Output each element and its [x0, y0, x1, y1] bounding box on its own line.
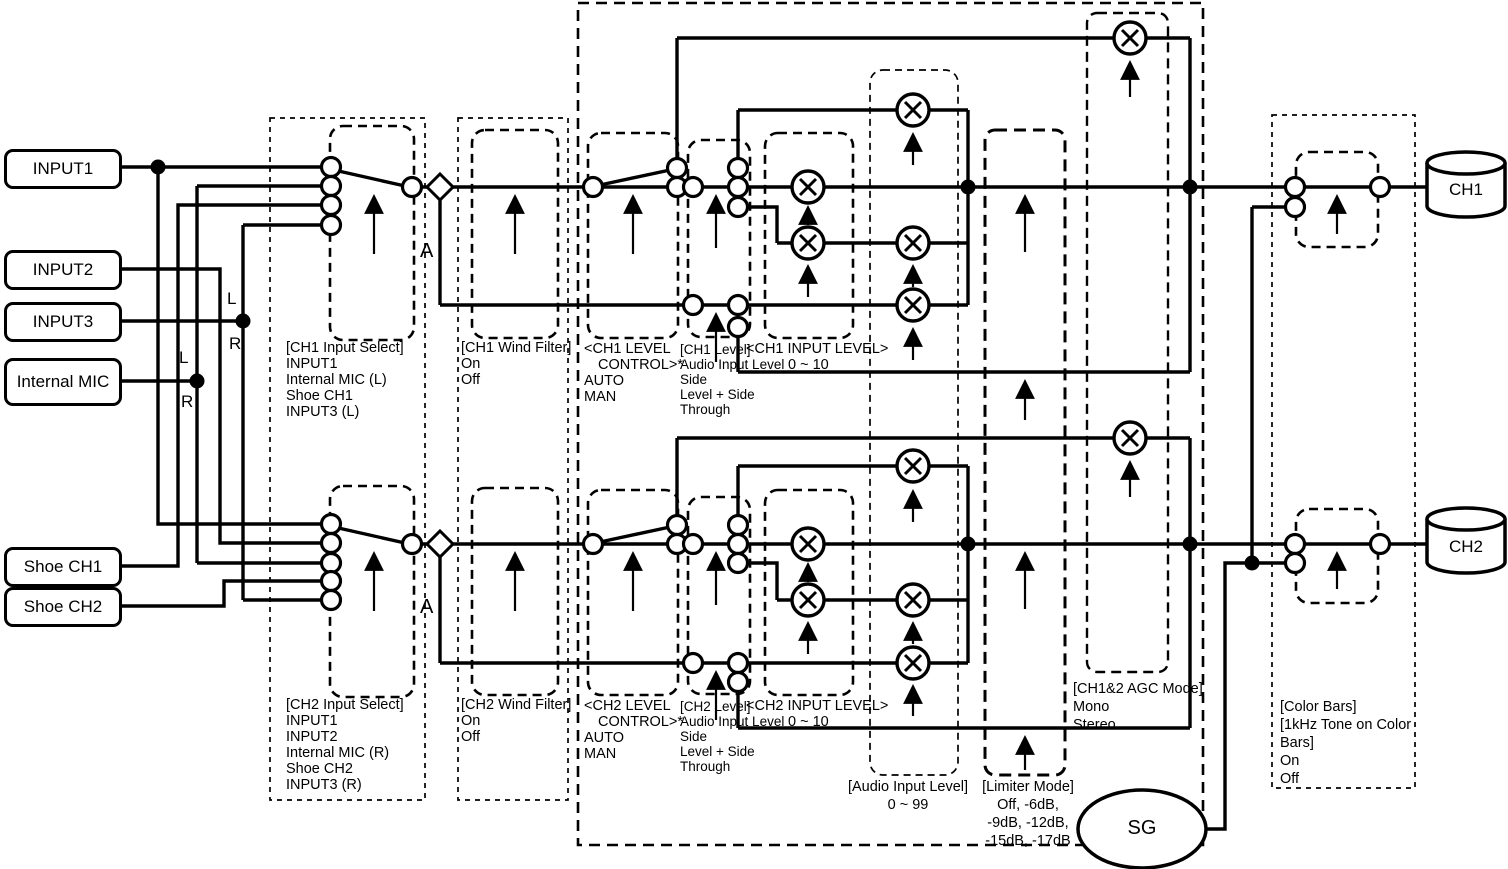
contact-circle [403, 178, 422, 197]
input3-right-marker: R [229, 334, 241, 354]
shoe-ch1-box: Shoe CH1 [4, 547, 122, 587]
wire-shoe-ch2 [120, 581, 331, 606]
contact-circle [322, 196, 341, 215]
contact-circle [729, 159, 748, 178]
menu-option: INPUT3 (L) [286, 404, 404, 420]
menu-option: INPUT1 [286, 713, 404, 729]
multiplier-icon [792, 171, 824, 203]
audio-input-level-title: [Audio Input Level] [848, 778, 968, 796]
contact-circle [729, 318, 748, 337]
input3-label: INPUT3 [33, 312, 93, 332]
ch1-wind-filter-label: [CH1 Wind Filter] On Off [461, 340, 571, 388]
ch2-input-level-range: 0 ~ 10 [746, 714, 888, 730]
contact-circle [1371, 178, 1390, 197]
shoe-ch2-box: Shoe CH2 [4, 587, 122, 627]
contact-circle [403, 535, 422, 554]
agc-mode-label: [CH1&2 AGC Mode] Mono Stereo [1073, 680, 1203, 734]
menu-option: Shoe CH1 [286, 388, 404, 404]
agc-mode-title: [CH1&2 AGC Mode] [1073, 680, 1203, 698]
ch1-tap-a-marker: A [420, 240, 433, 263]
contact-circle [322, 177, 341, 196]
menu-option: AUTO [584, 373, 683, 389]
contact-circle [322, 572, 341, 591]
input3-left-marker: L [227, 289, 236, 309]
ch2-input-level-label: <CH2 INPUT LEVEL> 0 ~ 10 [746, 698, 888, 730]
contact-circle [1286, 535, 1305, 554]
ch2-input-select-block [330, 486, 414, 697]
ch1-input-level-range: 0 ~ 10 [746, 357, 888, 373]
junction-dot [961, 180, 976, 195]
contact-circle [684, 654, 703, 673]
menu-option: On [461, 356, 571, 372]
menu-option: INPUT3 (R) [286, 777, 404, 793]
ch1-level-control-title2: CONTROL>* [584, 357, 683, 373]
ch2-wind-filter-label: [CH2 Wind Filter] On Off [461, 697, 571, 745]
multiplier-icon [792, 528, 824, 560]
contact-circle [729, 178, 748, 197]
menu-option: Level + Side [680, 744, 784, 759]
ch1-level-control-title: <CH1 LEVEL [584, 341, 683, 357]
menu-option: Off [461, 372, 571, 388]
menu-option: Off [1280, 770, 1411, 788]
multiplier-icon [897, 289, 929, 321]
contact-circle [729, 554, 748, 573]
ch2-level-control-label: <CH2 LEVEL CONTROL>* AUTO MAN [584, 698, 683, 762]
contact-circle [322, 554, 341, 573]
contact-circle [729, 654, 748, 673]
color-bars-label: [Color Bars] [1kHz Tone on Color Bars] O… [1280, 698, 1411, 788]
multiplier-icon [792, 584, 824, 616]
shoe-ch1-label: Shoe CH1 [24, 557, 102, 577]
ch2-tap-a-marker: A [420, 596, 433, 619]
ch1-side-line [440, 198, 968, 305]
input2-label: INPUT2 [33, 260, 93, 280]
menu-option: Side [680, 372, 784, 387]
junction-dot [190, 374, 205, 389]
limiter-mode-label: [Limiter Mode] Off, -6dB, -9dB, -12dB, -… [982, 778, 1074, 850]
contact-circle [322, 216, 341, 235]
ch2-side-line [440, 555, 968, 663]
menu-option: Side [680, 729, 784, 744]
ch1-level-control-arm [600, 170, 670, 185]
multiplier-icon [897, 450, 929, 482]
multiplier-icon [1114, 422, 1146, 454]
menu-option: AUTO [584, 730, 683, 746]
menu-option: Internal MIC (L) [286, 372, 404, 388]
switch-contacts [322, 158, 1390, 692]
menu-option: MAN [584, 389, 683, 405]
contact-circle [729, 198, 748, 217]
multiplier-icon [897, 584, 929, 616]
ch1-input-select-label: [CH1 Input Select] INPUT1 Internal MIC (… [286, 340, 404, 420]
contact-circle [684, 535, 703, 554]
mic-left-marker: L [179, 348, 188, 368]
contact-circle [729, 296, 748, 315]
ch1-input-level-label: <CH1 INPUT LEVEL> 0 ~ 10 [746, 341, 888, 373]
contact-circle [729, 516, 748, 535]
ch2-level-control-arm [600, 527, 670, 542]
menu-option: Mono [1073, 698, 1203, 716]
internal-mic-label: Internal MIC [17, 372, 110, 392]
contact-circle [1286, 554, 1305, 573]
junction-dot [961, 537, 976, 552]
contact-circle [584, 178, 603, 197]
ch1-input-level-title: <CH1 INPUT LEVEL> [746, 341, 888, 357]
ch1-output-label: CH1 [1436, 180, 1496, 200]
menu-option: Internal MIC (R) [286, 745, 404, 761]
contact-circle [668, 516, 687, 535]
ch2-wind-filter-title: [CH2 Wind Filter] [461, 697, 571, 713]
ch2-select-arm [334, 527, 405, 543]
menu-option: On [461, 713, 571, 729]
input1-label: INPUT1 [33, 159, 93, 179]
ch1-level-control-label: <CH1 LEVEL CONTROL>* AUTO MAN [584, 341, 683, 405]
contact-circle [668, 159, 687, 178]
color-bars-title3: Bars] [1280, 734, 1411, 752]
contact-circle [1371, 535, 1390, 554]
ch1-input-select-title: [CH1 Input Select] [286, 340, 404, 356]
multiplier-icon [792, 227, 824, 259]
menu-option: Stereo [1073, 716, 1203, 734]
menu-option: -9dB, -12dB, [982, 814, 1074, 832]
junction-dot [236, 314, 251, 329]
contact-circle [1286, 198, 1305, 217]
input2-box: INPUT2 [4, 250, 122, 290]
ch2-input-level-title: <CH2 INPUT LEVEL> [746, 698, 888, 714]
menu-option: Shoe CH2 [286, 761, 404, 777]
multiplier-icon [897, 227, 929, 259]
menu-option: Off, -6dB, [982, 796, 1074, 814]
junction-dot [1245, 556, 1260, 571]
menu-option: Through [680, 402, 784, 417]
audio-input-level-label: [Audio Input Level] 0 ~ 99 [848, 778, 968, 814]
menu-option: MAN [584, 746, 683, 762]
audio-input-level-range: 0 ~ 99 [848, 796, 968, 814]
input3-box: INPUT3 [4, 302, 122, 342]
input1-box: INPUT1 [4, 149, 122, 189]
ch2-input-select-label: [CH2 Input Select] INPUT1 INPUT2 Interna… [286, 697, 404, 793]
menu-option: -15dB, -17dB [982, 832, 1074, 850]
ch1-tap-a-diamond [427, 174, 453, 200]
menu-option: Off [461, 729, 571, 745]
agc-mode-block [1087, 13, 1168, 672]
ch1-input-select-block [330, 126, 414, 340]
ch2-level-control-title: <CH2 LEVEL [584, 698, 683, 714]
ch2-output-label: CH2 [1436, 537, 1496, 557]
internal-mic-box: Internal MIC [4, 358, 122, 406]
contact-circle [729, 535, 748, 554]
limiter-mode-title: [Limiter Mode] [982, 778, 1074, 796]
menu-option: On [1280, 752, 1411, 770]
audio-signal-flow-diagram: INPUT1 INPUT2 INPUT3 Internal MIC Shoe C… [0, 0, 1508, 869]
contact-circle [684, 178, 703, 197]
multiplier-icon [1114, 22, 1146, 54]
contact-circle [322, 158, 341, 177]
menu-option: INPUT2 [286, 729, 404, 745]
ch1-agc-loop [677, 38, 1190, 372]
multiplier-icon [897, 647, 929, 679]
contact-circle [1286, 178, 1305, 197]
sg-label: SG [1119, 817, 1165, 840]
menu-option: Through [680, 759, 784, 774]
ch1-wind-filter-title: [CH1 Wind Filter] [461, 340, 571, 356]
contact-circle [322, 534, 341, 553]
junction-dot [1183, 537, 1198, 552]
menu-option: Level + Side [680, 387, 784, 402]
multiplier-icon [897, 94, 929, 126]
ch2-tap-a-diamond [427, 531, 453, 557]
contact-circle [322, 591, 341, 610]
junction-dot [151, 160, 166, 175]
color-bars-title2: [1kHz Tone on Color [1280, 716, 1411, 734]
contact-circle [322, 515, 341, 534]
ch2-level-control-title2: CONTROL>* [584, 714, 683, 730]
ch1-select-arm [334, 170, 405, 186]
junction-dot [1183, 180, 1198, 195]
output-cylinders [1427, 152, 1505, 573]
menu-option: INPUT1 [286, 356, 404, 372]
color-bars-title: [Color Bars] [1280, 698, 1411, 716]
contact-circle [684, 296, 703, 315]
mic-right-marker: R [181, 392, 193, 412]
contact-circle [729, 673, 748, 692]
ch2-input-select-title: [CH2 Input Select] [286, 697, 404, 713]
contact-circle [584, 535, 603, 554]
shoe-ch2-label: Shoe CH2 [24, 597, 102, 617]
